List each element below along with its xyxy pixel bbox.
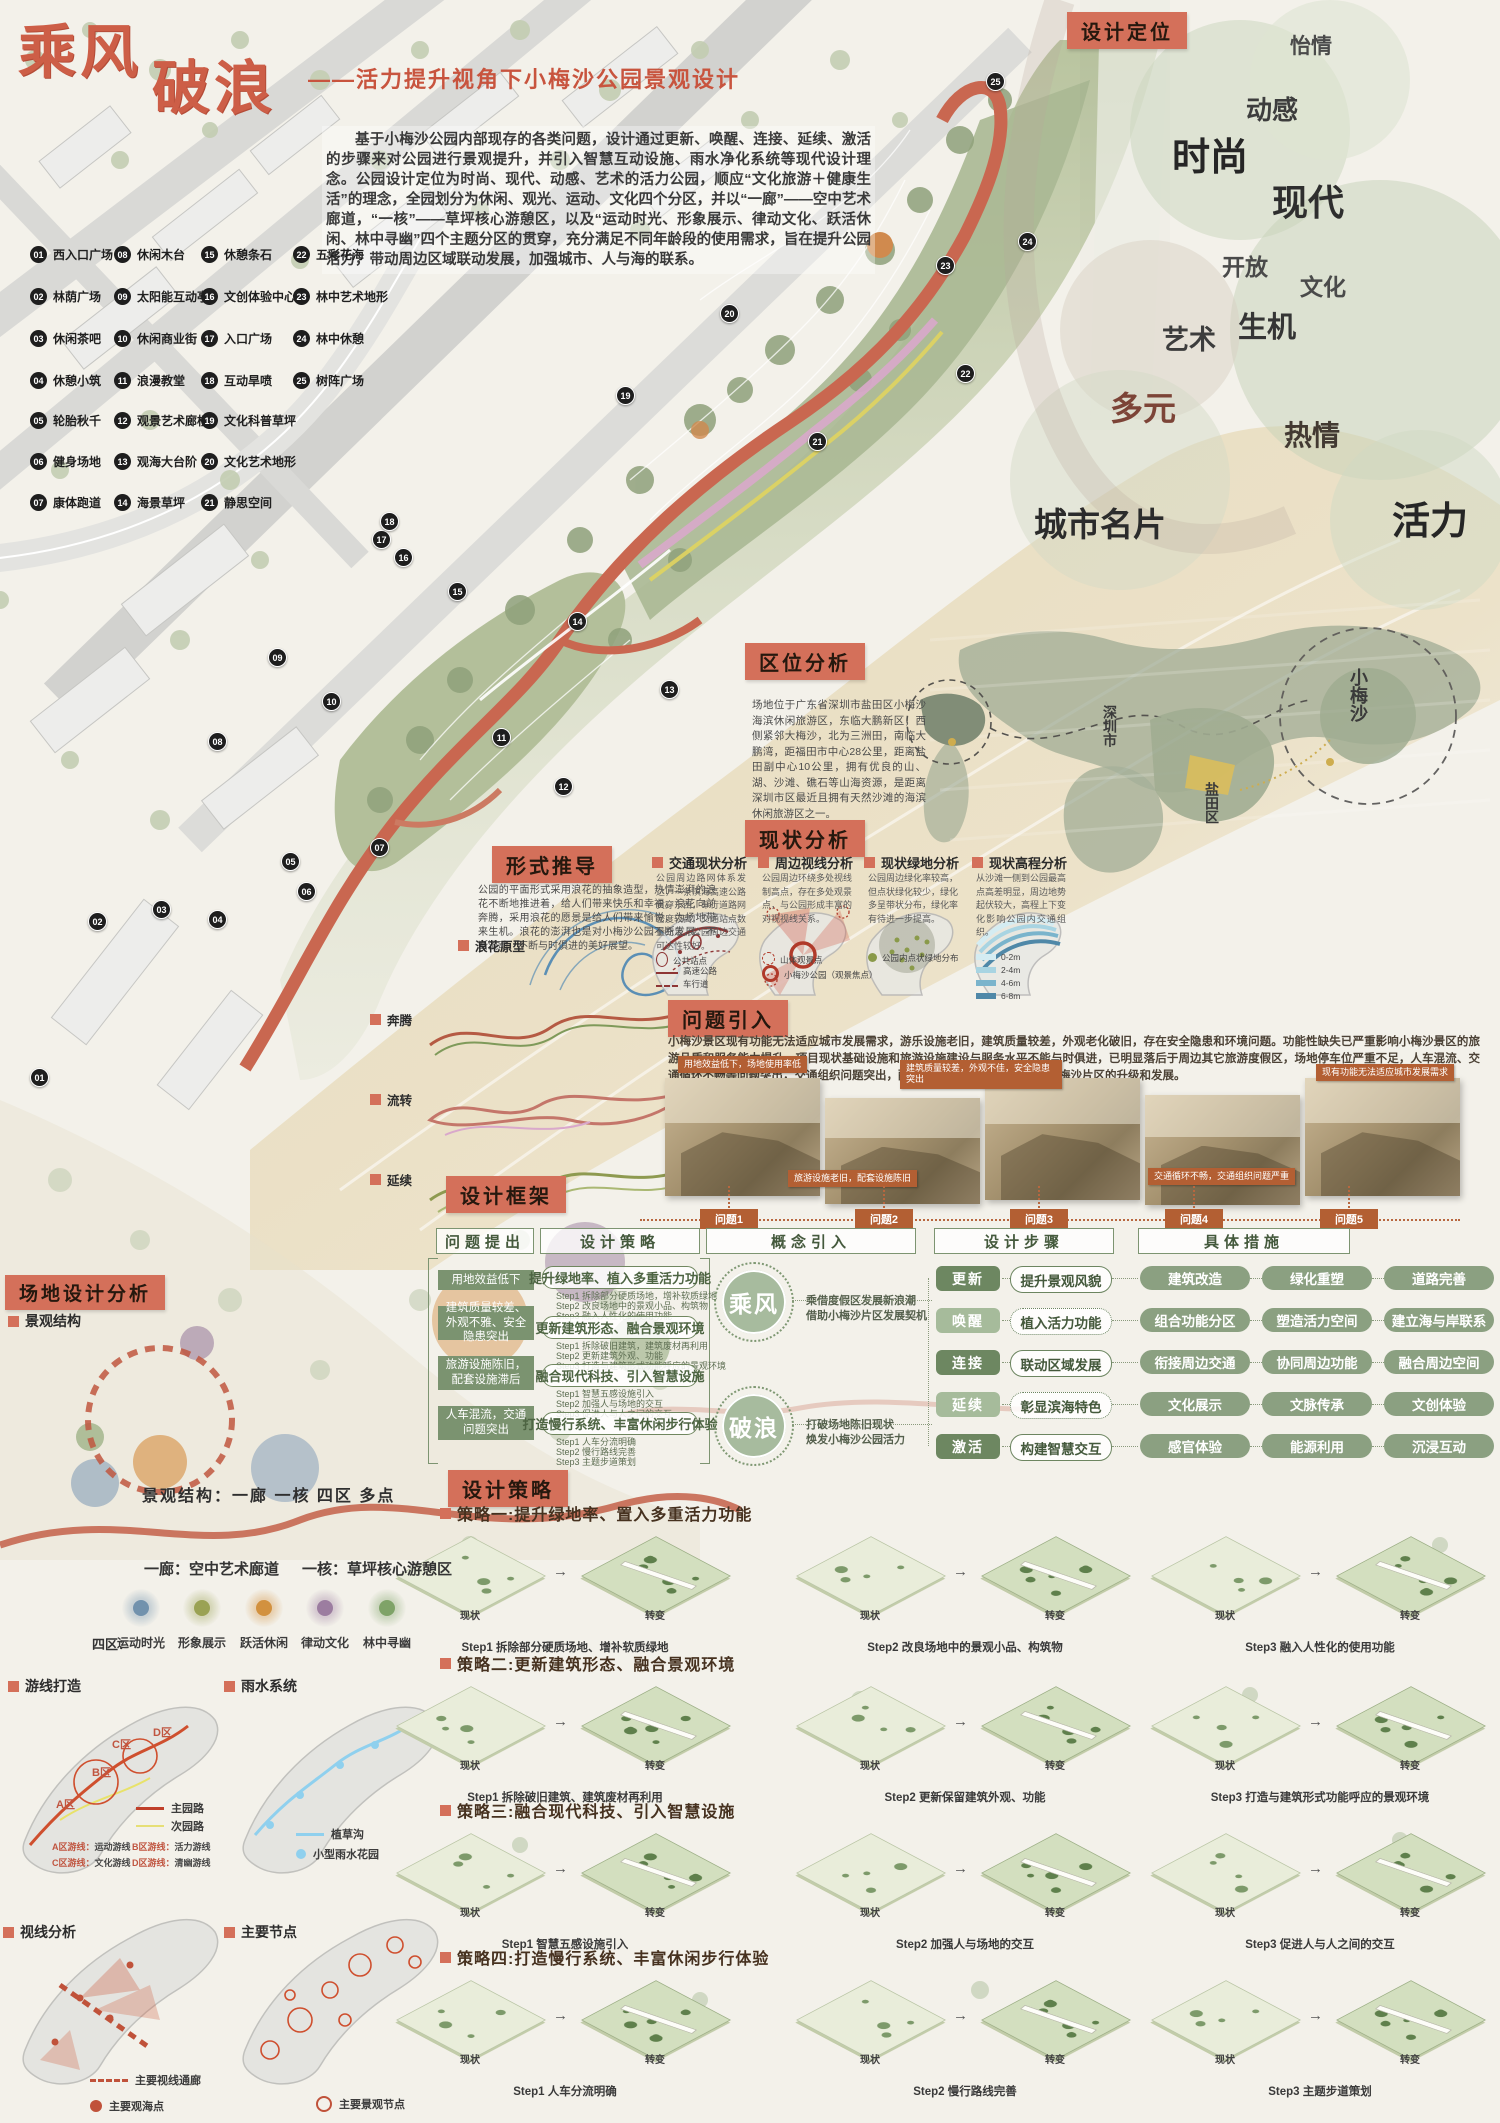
map-marker: 25 — [986, 72, 1005, 91]
measure-connector — [1372, 1404, 1384, 1405]
legend-item: 05轮胎秋千 — [30, 412, 101, 429]
map-marker: 09 — [268, 648, 287, 667]
strategy-diagram-group: 现状转变→ — [395, 1673, 735, 1773]
strategy-diagram-group: 现状转变→ — [1150, 1967, 1490, 2067]
bracket-left — [428, 1258, 438, 1464]
legend-label: 林荫广场 — [53, 288, 101, 305]
tree-dot-icon — [458, 1724, 476, 1734]
diagram-before-cell: 现状 — [395, 1820, 545, 1920]
tree-dot-icon — [832, 1565, 850, 1575]
tree-dot-icon — [904, 1726, 918, 1733]
framework-measure-box: 塑造活力空间 — [1262, 1308, 1372, 1332]
legend-number-badge: 02 — [30, 288, 47, 305]
framework-strategy-step: Step3 主题步道策划 — [556, 1457, 711, 1468]
positioning-keyword: 生机 — [1238, 304, 1296, 346]
tree-dot-icon — [1378, 1726, 1392, 1733]
legend-symbol-icon — [976, 978, 996, 988]
framework-measure-box: 衔接周边交通 — [1140, 1350, 1250, 1374]
red-square-icon — [652, 857, 663, 868]
status-legend-item: 6-8m — [976, 991, 1020, 1001]
framework-measure-box: 绿化重塑 — [1262, 1266, 1372, 1290]
tree-dot-icon — [1217, 2018, 1227, 2023]
strategy-diagram-group: 现状转变→ — [795, 1820, 1135, 1920]
legend-symbol-icon — [868, 953, 877, 964]
legend-number-badge: 22 — [293, 246, 310, 263]
legend-label: 文化艺术地形 — [224, 453, 296, 470]
legend-item: 12观景艺术廊桥 — [114, 412, 209, 429]
timeline-connector — [883, 1186, 885, 1208]
measure-connector — [1372, 1362, 1384, 1363]
diagram-after-cell: 转变 — [580, 1523, 730, 1623]
section-tag-status: 现状分析 — [745, 820, 865, 857]
map-marker: 22 — [956, 364, 975, 383]
legend-item: 13观海大台阶 — [114, 453, 197, 470]
timeline-problem-chip: 问题1 — [700, 1209, 758, 1229]
path-shape-icon — [1375, 1561, 1452, 1590]
status-legend-item: 车行道 — [656, 978, 709, 990]
path-shape-icon — [620, 1561, 697, 1590]
legend-label: 轮胎秋千 — [53, 412, 101, 429]
measure-connector — [1250, 1362, 1262, 1363]
red-square-icon — [440, 1805, 451, 1816]
tree-dot-icon — [1398, 1555, 1412, 1562]
map-marker: 01 — [30, 1068, 49, 1087]
place-label: 深圳市 — [1100, 705, 1120, 747]
framework-measure-box: 文脉传承 — [1262, 1392, 1372, 1416]
zone-dot-core — [133, 1600, 149, 1616]
zone-dot-icon — [368, 1589, 406, 1627]
framework-measure-box: 能源利用 — [1262, 1434, 1372, 1458]
iso-plate-after — [1336, 1686, 1486, 1765]
arrow-right-icon: → — [553, 1713, 568, 1730]
timeline-connector — [1348, 1186, 1350, 1208]
status-legend-item: 2-4m — [976, 965, 1020, 975]
red-square-icon — [370, 1014, 381, 1025]
map-marker: 10 — [322, 692, 341, 711]
step-connector — [1112, 1320, 1138, 1321]
arrow-right-icon: → — [953, 1563, 968, 1580]
design-step-chip: 连接 — [936, 1350, 1000, 1375]
route-line-desc: D区游线：清幽游线 — [132, 1856, 211, 1869]
iso-plate-before — [796, 1536, 946, 1615]
tree-dot-icon — [1213, 1852, 1227, 1859]
legend-label: 休闲商业街 — [137, 330, 197, 347]
site-core-text: 一核：草坪核心游憩区 — [302, 1558, 452, 1579]
legend-item: 03休闲茶吧 — [30, 330, 101, 347]
step-connector — [1112, 1446, 1138, 1447]
diagram-before-cell: 现状 — [1150, 1673, 1300, 1773]
tree-dot-icon — [879, 1727, 889, 1732]
map-marker: 05 — [281, 852, 300, 871]
legend-label: 文创体验中心 — [224, 288, 296, 305]
positioning-keyword: 时尚 — [1172, 126, 1248, 181]
legend-number-badge: 18 — [201, 372, 218, 389]
legend-number-badge: 15 — [201, 246, 218, 263]
strategy-diagram-group: 现状转变→ — [795, 1523, 1135, 1623]
sight-legend-item: 主要视线通廊 — [90, 2072, 201, 2088]
red-square-icon — [864, 857, 875, 868]
diagram-state-label: 现状 — [795, 1607, 945, 1622]
strategy-row-title: 策略三:融合现代科技、引入智慧设施 — [440, 1798, 735, 1822]
tree-dot-icon — [621, 2020, 639, 2030]
tree-dot-icon — [1256, 1576, 1274, 1586]
arrow-right-icon: → — [1308, 1713, 1323, 1730]
map-marker: 08 — [208, 732, 227, 751]
route-area-label: C区 — [112, 1736, 131, 1752]
intro-paragraph: 基于小梅沙公园内部现存的各类问题，设计通过更新、唤醒、连接、延续、激活的步骤来对… — [322, 126, 875, 274]
tree-dot-icon — [1417, 1884, 1435, 1894]
status-subsection-desc: 公园周边路网体系发达，一条滨海高速公路贯穿东西，车行道路网密度较高，交通站点数量… — [656, 872, 746, 953]
problem-photo — [1305, 1078, 1460, 1196]
iso-plate-after — [581, 1536, 731, 1615]
legend-label: 文化科普草坪 — [224, 412, 296, 429]
tree-dot-icon — [1045, 1705, 1055, 1710]
timeline-connector — [1193, 1186, 1195, 1208]
strategy-diagram-group: 现状转变→ — [395, 1967, 735, 2067]
diagram-state-label: 转变 — [580, 1904, 730, 1919]
iso-plate-after — [581, 1686, 731, 1765]
timeline-problem-chip: 问题5 — [1320, 1209, 1378, 1229]
legend-item: 25树阵广场 — [293, 372, 364, 389]
diagram-after-cell: 转变 — [1335, 1967, 1485, 2067]
status-legend-item: 0-2m — [976, 952, 1020, 962]
problem-photo-caption: 用地效益低下，场地使用率低 — [678, 1056, 807, 1073]
legend-item: 07康体跑道 — [30, 494, 101, 511]
zone-dot-core — [256, 1600, 272, 1616]
red-square-icon — [440, 1952, 451, 1963]
strategy-step-caption: Step2 加强人与场地的交互 — [775, 1936, 1155, 1952]
framework-column-header: 问题提出 — [436, 1228, 534, 1254]
node-legend-item: 主要景观节点 — [316, 2096, 405, 2112]
status-legend-item: 小梅沙公园（观景焦点） — [762, 965, 878, 984]
tree-dot-icon — [860, 1705, 870, 1710]
site-structure-label: 景观结构 — [8, 1311, 81, 1331]
legend-number-badge: 03 — [30, 330, 47, 347]
diagram-state-label: 现状 — [1150, 2051, 1300, 2066]
legend-label: 太阳能互动亭 — [137, 288, 209, 305]
framework-measure-box: 文化展示 — [1140, 1392, 1250, 1416]
diagram-after-cell: 转变 — [1335, 1523, 1485, 1623]
map-marker: 20 — [720, 304, 739, 323]
red-square-icon — [458, 940, 469, 951]
legend-item: 20文化艺术地形 — [201, 453, 296, 470]
map-marker: 18 — [380, 512, 399, 531]
route-area-label: B区 — [92, 1764, 111, 1780]
strategy-diagram-group: 现状转变→ — [1150, 1523, 1490, 1623]
diagram-state-label: 转变 — [980, 2051, 1130, 2066]
iso-plate-after — [981, 1536, 1131, 1615]
framework-strategy-box: 更新建筑形态、融合景观环境 — [542, 1316, 698, 1339]
tree-dot-icon — [862, 1574, 872, 1579]
strategy-diagram-group: 现状转变→ — [1150, 1673, 1490, 1773]
strategy-diagram-group: 现状转变→ — [395, 1820, 735, 1920]
tree-dot-icon — [1404, 2033, 1418, 2040]
tree-dot-icon — [1064, 1737, 1078, 1744]
status-subsection-desc: 公园周边绿化率较高，但点状绿化较少，绿化多呈带状分布，绿化率有待进一步提高。 — [868, 872, 958, 926]
tree-dot-icon — [849, 1713, 867, 1723]
arrow-right-icon: → — [953, 2007, 968, 2024]
diagram-after-cell: 转变 — [580, 1673, 730, 1773]
step-connector — [1112, 1404, 1138, 1405]
map-marker: 14 — [568, 612, 587, 631]
framework-measure-box: 建立海与岸联系 — [1384, 1308, 1494, 1332]
arrow-right-icon: → — [1308, 2007, 1323, 2024]
dot-symbol-icon — [296, 1849, 306, 1859]
poster-subtitle: ——活力提升视角下小梅沙公园景观设计 — [308, 62, 740, 94]
problem-photo — [825, 1098, 980, 1204]
problem-photo — [1145, 1095, 1300, 1205]
path-shape-icon — [1375, 1858, 1452, 1887]
design-step-chip: 延续 — [936, 1392, 1000, 1417]
measure-connector — [1250, 1278, 1262, 1279]
legend-label: 休憩条石 — [224, 246, 272, 263]
legend-number-badge: 05 — [30, 412, 47, 429]
tree-dot-icon — [441, 1726, 451, 1731]
tree-dot-icon — [1217, 1739, 1235, 1749]
legend-item: 11浪漫教堂 — [114, 372, 185, 389]
tree-dot-icon — [1208, 1563, 1218, 1568]
diagram-after-cell: 转变 — [580, 1820, 730, 1920]
iso-plate-before — [396, 1833, 546, 1912]
form-step-label: 奔腾 — [370, 1010, 412, 1029]
step-connector — [1002, 1404, 1010, 1405]
measure-connector — [1372, 1320, 1384, 1321]
strategy-diagram-group: 现状转变→ — [1150, 1820, 1490, 1920]
red-square-icon — [8, 1316, 19, 1327]
legend-symbol-icon — [656, 966, 678, 976]
design-step-chip: 唤醒 — [936, 1308, 1000, 1333]
strategy-step-caption: Step3 促进人与人之间的交互 — [1130, 1936, 1500, 1952]
legend-item: 02林荫广场 — [30, 288, 101, 305]
framework-measure-box: 沉浸互动 — [1384, 1434, 1494, 1458]
legend-label: 休闲木台 — [137, 246, 185, 263]
legend-item: 04休憩小筑 — [30, 372, 101, 389]
diagram-before-cell: 现状 — [395, 1673, 545, 1773]
red-square-icon — [8, 1681, 19, 1692]
legend-item: 10休闲商业街 — [114, 330, 197, 347]
red-square-icon — [3, 1927, 14, 1938]
diagram-state-label: 转变 — [1335, 1757, 1485, 1772]
iso-plate-before — [1151, 1833, 1301, 1912]
status-subsection-title: 交通现状分析 — [652, 853, 747, 872]
framework-measure-box: 建筑改造 — [1140, 1266, 1250, 1290]
diagram-state-label: 现状 — [1150, 1904, 1300, 1919]
concept-desc-line: 借助小梅沙片区发展契机 — [806, 1307, 927, 1323]
legend-number-badge: 23 — [293, 288, 310, 305]
positioning-keyword: 文化 — [1300, 268, 1346, 302]
status-legend-item: 4-6m — [976, 978, 1020, 988]
map-marker: 21 — [808, 432, 827, 451]
legend-number-badge: 07 — [30, 494, 47, 511]
framework-column-header: 设计步骤 — [934, 1228, 1114, 1254]
legend-label: 互动旱喷 — [224, 372, 272, 389]
map-marker: 24 — [1018, 232, 1037, 251]
positioning-keyword: 多元 — [1110, 382, 1176, 430]
zone-dot-icon — [183, 1589, 221, 1627]
sight-legend-item: 主要观海点 — [90, 2098, 164, 2114]
status-subsection-desc: 公园周边环绕多处视线制高点，存在多处观景点，与公园形成丰富的对视视线关系。 — [762, 872, 852, 926]
tree-dot-icon — [862, 1871, 872, 1876]
framework-problem-box: 用地效益低下 — [438, 1270, 534, 1290]
tree-dot-icon — [1237, 1587, 1247, 1592]
legend-label: 休憩小筑 — [53, 372, 101, 389]
tree-dot-icon — [482, 1884, 492, 1889]
legend-number-badge: 12 — [114, 412, 131, 429]
framework-measure-box: 融合周边空间 — [1384, 1350, 1494, 1374]
framework-problem-box: 建筑质量较差、外观不雅、安全隐患突出 — [438, 1306, 534, 1340]
diagram-before-cell: 现状 — [1150, 1967, 1300, 2067]
legend-number-badge: 14 — [114, 494, 131, 511]
zone-dot-icon — [122, 1589, 160, 1627]
tree-dot-icon — [1191, 1715, 1201, 1720]
concept-connector — [792, 1424, 932, 1425]
tree-dot-icon — [1077, 1565, 1095, 1575]
diagram-before-cell: 现状 — [795, 1673, 945, 1773]
design-step-result: 植入活力功能 — [1010, 1308, 1112, 1335]
diagram-before-cell: 现状 — [795, 1967, 945, 2067]
arrow-right-icon: → — [1308, 1860, 1323, 1877]
legend-item: 06健身场地 — [30, 453, 101, 470]
design-poster: 乘风 破浪 ——活力提升视角下小梅沙公园景观设计 基于小梅沙公园内部现存的各类问… — [0, 0, 1500, 2123]
diagram-state-label: 现状 — [395, 1607, 545, 1622]
tree-dot-icon — [679, 1715, 693, 1722]
section-tag-positioning: 设计定位 — [1067, 12, 1187, 49]
tree-dot-icon — [1251, 1715, 1261, 1720]
concept-connector — [792, 1300, 932, 1301]
diagram-state-label: 现状 — [795, 1904, 945, 1919]
poster-title-part2: 破浪 — [152, 60, 276, 118]
strategy-step-caption: Step2 改良场地中的景观小品、构筑物 — [775, 1639, 1155, 1655]
diagram-state-label: 转变 — [980, 1757, 1130, 1772]
tree-dot-icon — [1077, 1862, 1095, 1872]
route-line-desc: B区游线：活力游线 — [132, 1840, 211, 1853]
measure-connector — [1250, 1320, 1262, 1321]
status-legend-item: 公园内点状绿地分布 — [868, 952, 959, 964]
place-label: 小梅沙 — [1345, 668, 1371, 722]
route-area-label: D区 — [153, 1724, 172, 1740]
legend-number-badge: 10 — [114, 330, 131, 347]
tree-dot-icon — [879, 2031, 893, 2038]
framework-measure-box: 感官体验 — [1140, 1434, 1250, 1458]
tree-dot-icon — [1432, 2009, 1450, 2019]
map-marker: 17 — [372, 530, 391, 549]
framework-strategy-box: 打造慢行系统、丰富休闲步行体验 — [542, 1412, 698, 1435]
red-square-icon — [224, 1927, 235, 1938]
line-symbol-icon — [296, 1833, 324, 1836]
diagram-state-label: 现状 — [795, 2051, 945, 2066]
legend-number-badge: 01 — [30, 246, 47, 263]
map-marker: 11 — [492, 728, 511, 747]
path-shape-icon — [1020, 1711, 1097, 1740]
legend-number-badge: 16 — [201, 288, 218, 305]
iso-plate-after — [981, 1833, 1131, 1912]
iso-plate-after — [1336, 1980, 1486, 2059]
legend-number-badge: 17 — [201, 330, 218, 347]
section-tag-site: 场地设计分析 — [5, 1275, 165, 1310]
tree-dot-icon — [479, 1587, 493, 1594]
form-step-label: 流转 — [370, 1090, 412, 1109]
iso-plate-before — [1151, 1536, 1301, 1615]
tree-dot-icon — [1215, 1724, 1229, 1731]
map-marker: 13 — [660, 680, 679, 699]
map-marker: 07 — [370, 838, 389, 857]
red-square-icon — [440, 1658, 451, 1669]
diagram-before-cell: 现状 — [395, 1967, 545, 2067]
diagram-after-cell: 转变 — [980, 1673, 1130, 1773]
legend-number-badge: 25 — [293, 372, 310, 389]
problem-photo — [985, 1078, 1140, 1200]
legend-symbol-icon — [976, 965, 996, 975]
tree-dot-icon — [841, 1873, 851, 1878]
arrow-right-icon: → — [953, 1713, 968, 1730]
legend-number-badge: 21 — [201, 494, 218, 511]
zone-label: 林中寻幽 — [359, 1634, 415, 1651]
legend-item: 18互动旱喷 — [201, 372, 272, 389]
route-line-desc: A区游线：运动游线 — [52, 1840, 131, 1853]
arrow-right-icon: → — [553, 2007, 568, 2024]
status-subsection-title: 现状绿地分析 — [864, 853, 959, 872]
map-marker: 16 — [394, 548, 413, 567]
tree-dot-icon — [1232, 1884, 1250, 1894]
legend-item: 08休闲木台 — [114, 246, 185, 263]
steps-spine — [928, 1278, 929, 1446]
map-marker: 23 — [936, 256, 955, 275]
strategy-step-caption: Step2 更新保留建筑外观、功能 — [775, 1789, 1155, 1805]
location-text: 场地位于广东省深圳市盐田区小梅沙海滨休闲旅游区，东临大鹏新区，西侧紧邻大梅沙，北… — [752, 698, 926, 822]
positioning-keyword: 艺术 — [1162, 318, 1216, 357]
framework-strategy-box: 提升绿地率、植入多重活力功能 — [542, 1266, 698, 1289]
tree-dot-icon — [864, 1886, 878, 1893]
legend-number-badge: 11 — [114, 372, 131, 389]
diagram-state-label: 现状 — [395, 1904, 545, 1919]
legend-item: 17入口广场 — [201, 330, 272, 347]
tree-dot-icon — [1187, 2009, 1205, 2019]
step-connector — [1002, 1362, 1010, 1363]
legend-symbol-icon — [762, 965, 779, 984]
tree-dot-icon — [434, 1715, 448, 1722]
framework-measure-box: 文创体验 — [1384, 1392, 1494, 1416]
legend-label: 树阵广场 — [316, 372, 364, 389]
tree-dot-icon — [451, 1860, 465, 1867]
framework-measure-box: 组合功能分区 — [1140, 1308, 1250, 1332]
step-connector — [1002, 1278, 1010, 1279]
tree-dot-icon — [506, 1576, 516, 1581]
tree-dot-icon — [466, 2033, 476, 2038]
framework-problem-box: 旅游设施陈旧，配套设施滞后 — [438, 1356, 534, 1390]
legend-item: 24林中休憩 — [293, 330, 364, 347]
status-subsection-title: 现状高程分析 — [972, 853, 1067, 872]
tree-dot-icon — [466, 1739, 476, 1744]
timeline-problem-chip: 问题2 — [855, 1209, 913, 1229]
section-tag-framework: 设计框架 — [446, 1176, 566, 1213]
strategy-step-caption: Step2 慢行路线完善 — [775, 2083, 1155, 2099]
zone-dot-core — [379, 1600, 395, 1616]
tree-dot-icon — [494, 2009, 508, 2016]
site-structure-text: 景观结构：一廊 一核 四区 多点 — [142, 1482, 395, 1506]
tree-dot-icon — [667, 1884, 677, 1889]
measure-connector — [1372, 1446, 1384, 1447]
section-tag-problems: 问题引入 — [668, 1000, 788, 1037]
route-legend-item: 次园路 — [136, 1818, 204, 1834]
arrow-right-icon: → — [1308, 1563, 1323, 1580]
iso-plate-after — [581, 1833, 731, 1912]
legend-label: 健身场地 — [53, 453, 101, 470]
diagram-after-cell: 转变 — [580, 1967, 730, 2067]
tree-dot-icon — [906, 2020, 916, 2025]
line-symbol-icon — [136, 1807, 164, 1810]
iso-plate-after — [1336, 1536, 1486, 1615]
tree-dot-icon — [1193, 2020, 1207, 2027]
